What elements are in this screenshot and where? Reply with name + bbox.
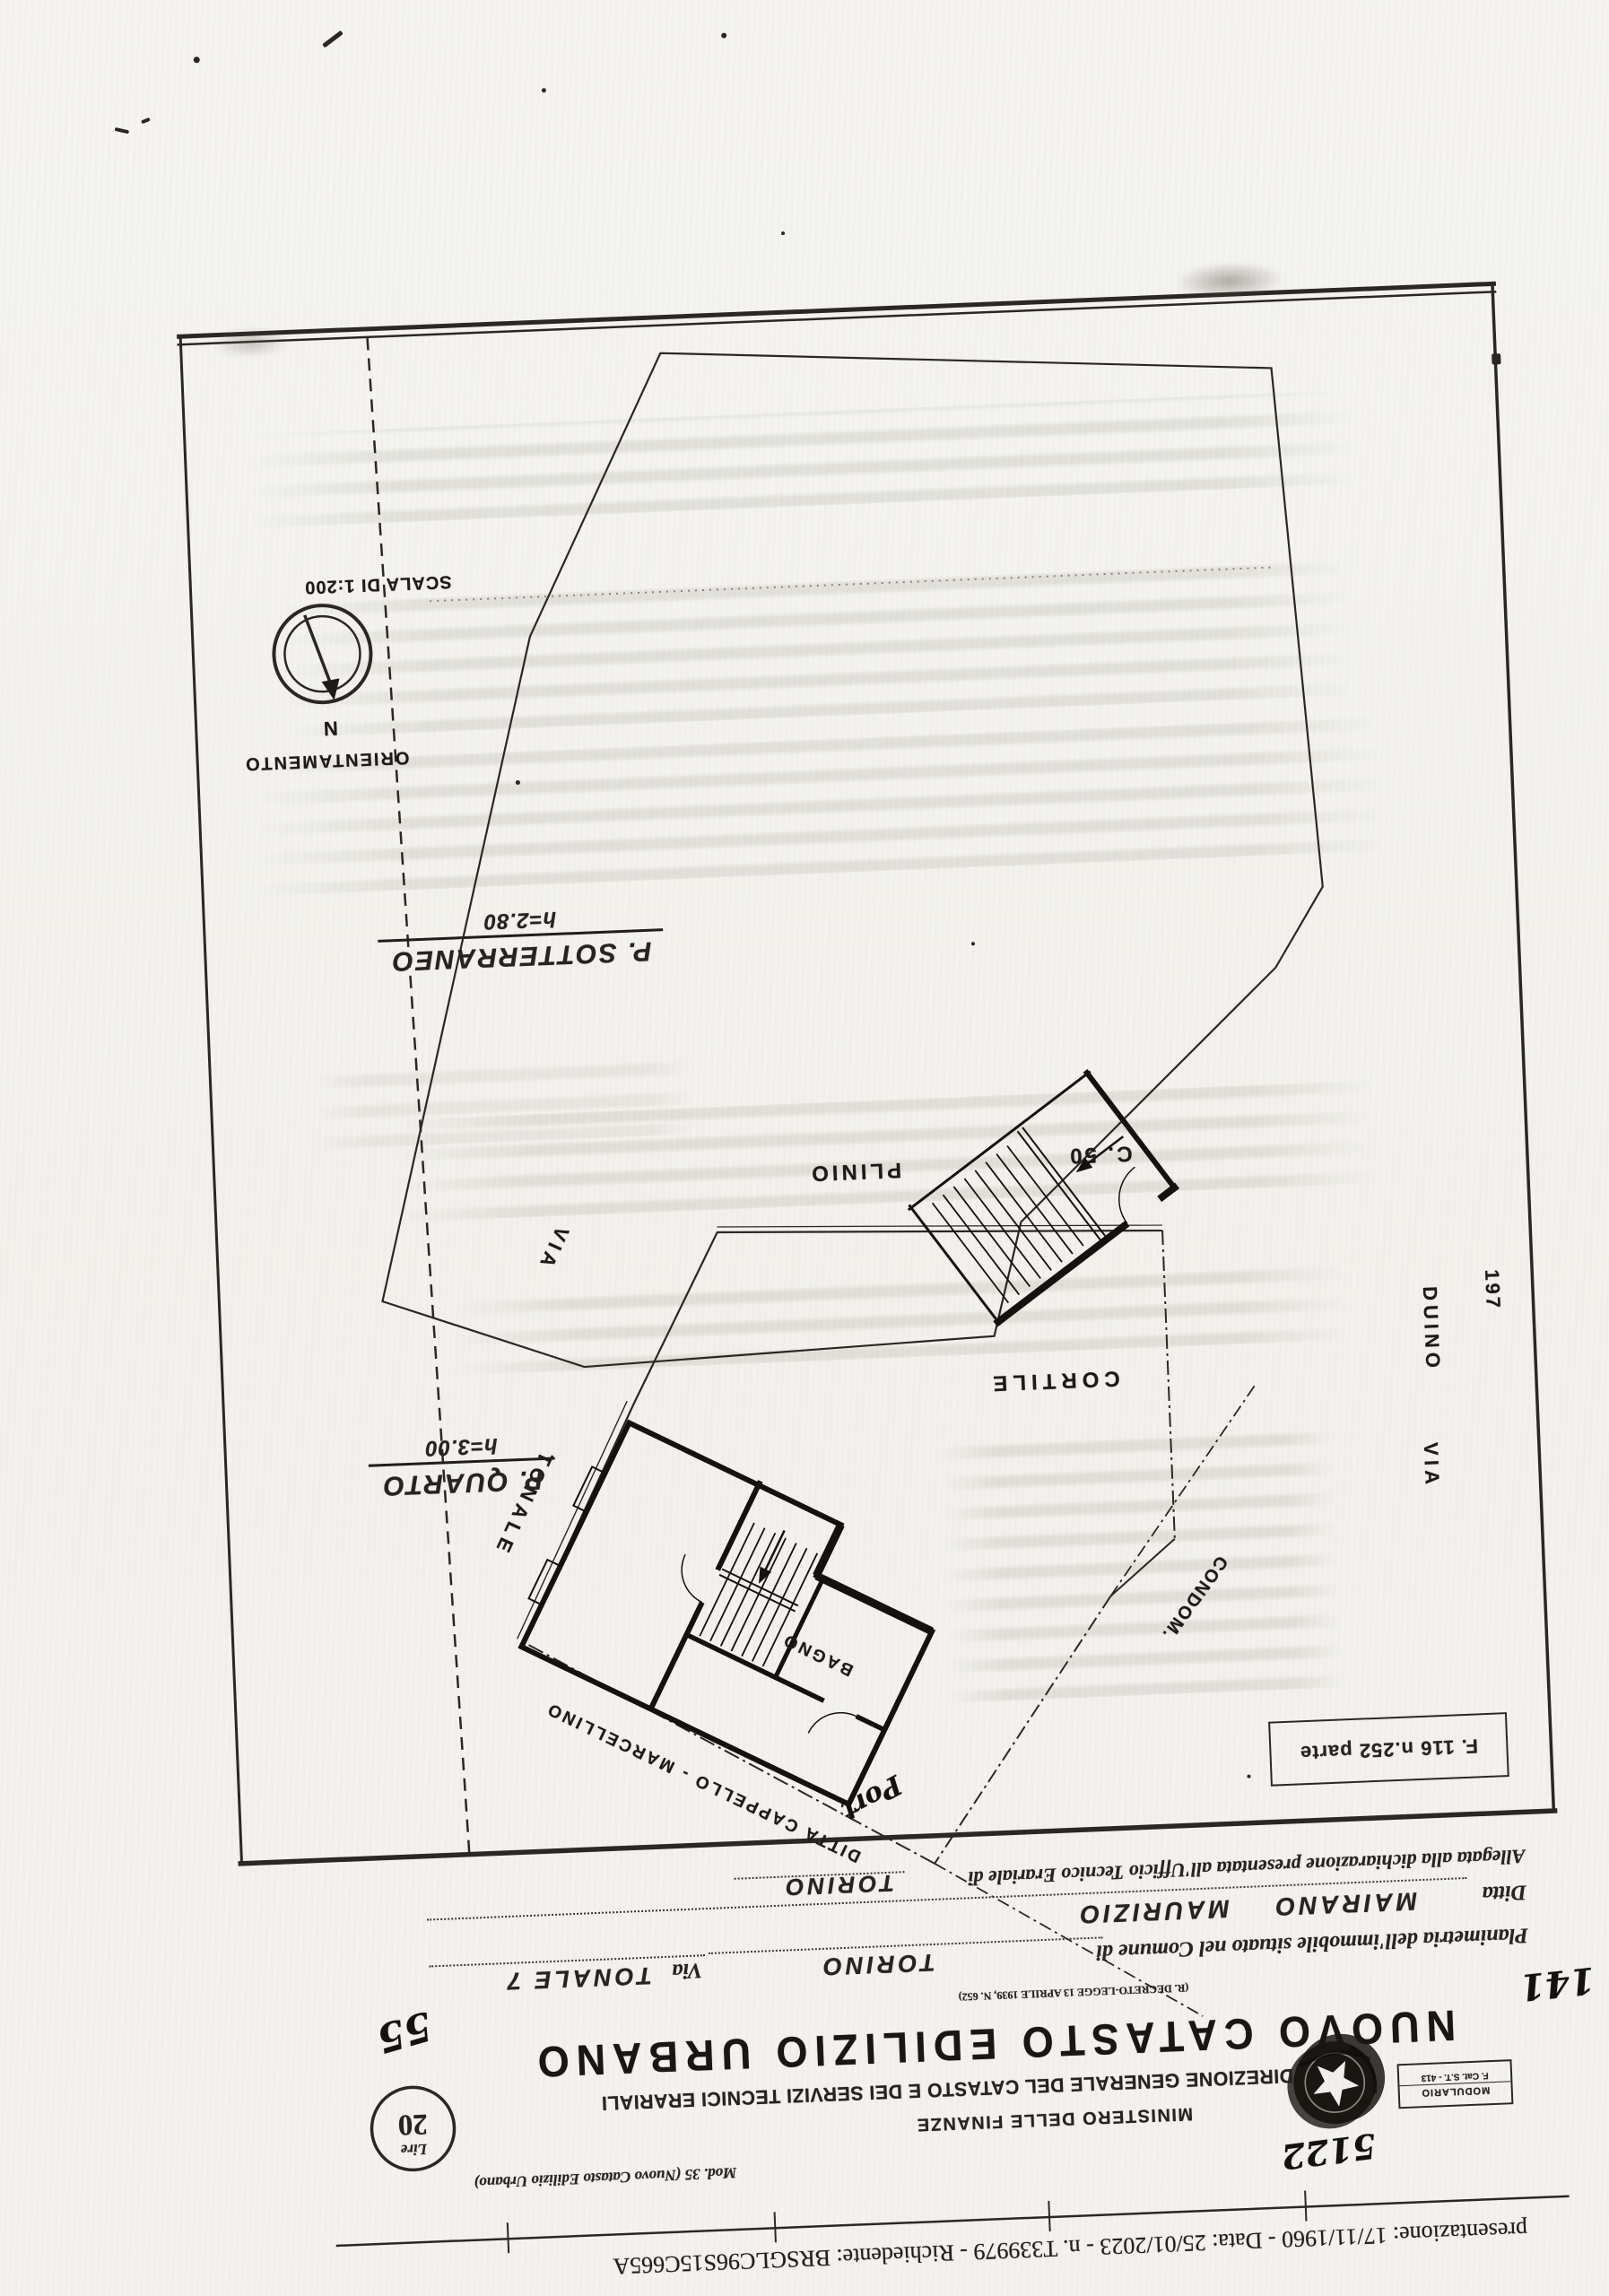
allegata-value: TORINO [782,1869,895,1901]
lire-label: Lire [387,2139,441,2159]
cortile-label: CORTILE [987,1365,1120,1396]
street-duino-via-label: VIA [1419,1442,1444,1490]
floor-upper-name: P. QUARTO [369,1457,556,1500]
sheet-reference: F. 116 n.252 parte [1299,1734,1478,1764]
handwritten-sheet-number: 141 [1518,1959,1596,2009]
street-plinio-label: PLINIO [808,1157,902,1186]
modulario-top-label: MODULARIO [1421,2084,1490,2098]
ditta-label: Ditta [1482,1879,1526,1905]
civic-c50-label: C. 50 [1067,1140,1133,1168]
rotated-document-content: presentazione: 17/11/1960 - Data: 25/01/… [0,0,1609,2296]
lire-value: 20 [384,2106,442,2142]
comune-value: TORINO [819,1948,935,1980]
via-value: TONALE 7 [503,1961,652,1996]
floor-upper-title-block: P. QUARTO h=3.00 [313,1428,612,1503]
street-duino-label: DUINO [1418,1286,1445,1373]
ink-speck [1492,353,1500,364]
modulario-bottom-label: F. Cat. S.T. - 413 [1421,2070,1488,2083]
scanned-cadastral-document: presentazione: 17/11/1960 - Data: 25/01/… [0,0,1609,2296]
via-label: Via [672,1957,702,1982]
sheet-reference-box: F. 116 n.252 parte [1268,1712,1509,1787]
modulario-box: MODULARIO F. Cat. S.T. - 413 [1397,2059,1514,2109]
north-label: N [323,717,338,741]
civic-197-label: 197 [1480,1269,1505,1311]
